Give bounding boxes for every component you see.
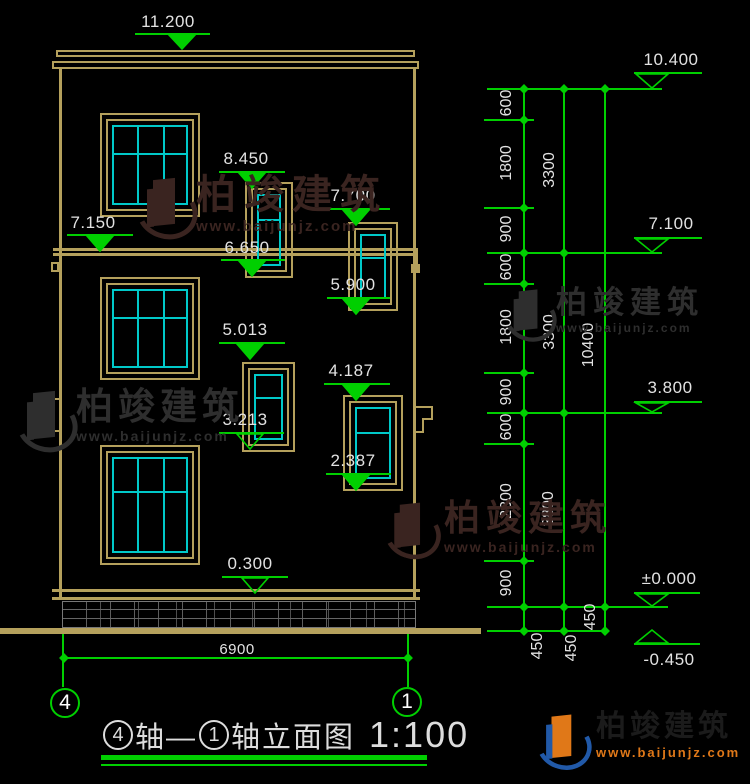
watermark: 柏竣建筑 www.baijunjz.com [386, 500, 612, 562]
dim-label-1800: 1800 [498, 145, 516, 181]
dim-label-600: 600 [498, 90, 516, 117]
watermark-brand: 柏竣建筑 [76, 388, 244, 425]
watermark-url: www.baijunjz.com [596, 746, 740, 759]
dim-label-900: 900 [498, 216, 516, 243]
dim-label-450: 450 [529, 633, 547, 660]
watermark-brand: 柏竣建筑 [596, 712, 740, 742]
elevation-drawing-canvas: 11.2007.1508.4506.6507.7005.9005.0133.21… [0, 0, 750, 784]
watermark-footer-logo: 柏竣建筑 www.baijunjz.com [538, 712, 740, 774]
axis-bubble-4: 4 [50, 688, 80, 718]
watermark-url: www.baijunjz.com [556, 322, 704, 334]
watermark-logo-icon [506, 287, 550, 340]
watermark-brand: 柏竣建筑 [196, 175, 388, 215]
watermark-logo-icon [386, 500, 434, 557]
title-mid-text: 轴— [135, 714, 197, 756]
title-underline-thin [101, 764, 427, 766]
dim-label-450: 450 [582, 604, 600, 631]
title-axis-a: 4 [112, 724, 123, 747]
dim-label-600: 600 [498, 414, 516, 441]
watermark-brand: 柏竣建筑 [444, 500, 612, 536]
axis-bubble-4-label: 4 [59, 691, 71, 715]
dim-label-3300: 3300 [541, 152, 559, 188]
watermark-url: www.baijunjz.com [196, 219, 388, 234]
watermark-url: www.baijunjz.com [76, 429, 244, 443]
watermark: 柏竣建筑 www.baijunjz.com [506, 287, 704, 349]
title-underline-thick [101, 755, 427, 760]
title-axis-b: 1 [208, 724, 219, 747]
dim-label-450: 450 [563, 635, 581, 662]
title-scale: 1:100 [369, 714, 469, 756]
watermark-logo-icon [538, 712, 585, 768]
axis-bubble-1: 1 [392, 687, 422, 717]
title-axis-a-bubble: 4 [103, 720, 133, 750]
bottom-width-dimension: 6900 [219, 641, 254, 658]
watermark: 柏竣建筑 www.baijunjz.com [18, 388, 244, 450]
dim-label-900: 900 [498, 570, 516, 597]
watermark-logo-icon [138, 175, 190, 237]
title-axis-b-bubble: 1 [199, 720, 229, 750]
dim-major-tick [487, 606, 668, 608]
watermark-logo-icon [18, 388, 70, 450]
watermark-url: www.baijunjz.com [444, 540, 612, 554]
watermark: 柏竣建筑 www.baijunjz.com [138, 175, 388, 237]
dim-label-600: 600 [498, 254, 516, 281]
dim-label-900: 900 [498, 379, 516, 406]
axis-bubble-1-label: 1 [401, 690, 413, 714]
watermark-brand: 柏竣建筑 [556, 287, 704, 318]
title-name-text: 轴立面图 [231, 714, 355, 756]
drawing-title: 4 轴— 1 轴立面图 1:100 [101, 714, 469, 756]
